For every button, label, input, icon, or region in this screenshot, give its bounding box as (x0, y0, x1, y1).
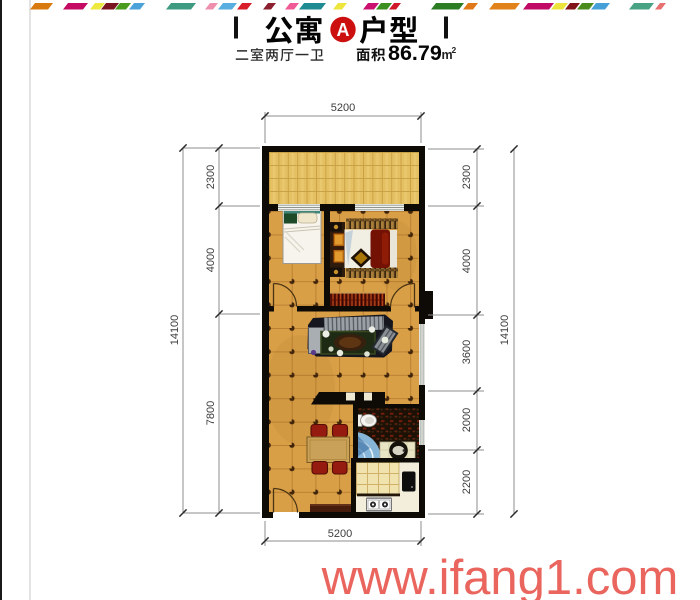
svg-text:2200: 2200 (461, 470, 473, 494)
svg-text:14100: 14100 (169, 315, 181, 346)
svg-text:14100: 14100 (499, 315, 511, 346)
svg-text:5200: 5200 (328, 528, 352, 540)
svg-text:www.ifang1.com: www.ifang1.com (321, 551, 679, 600)
svg-text:86.79: 86.79 (388, 41, 442, 65)
svg-text:3600: 3600 (461, 340, 473, 364)
svg-text:2300: 2300 (205, 165, 217, 189)
svg-text:4000: 4000 (461, 249, 473, 273)
svg-text:5200: 5200 (331, 102, 355, 114)
svg-text:2300: 2300 (461, 165, 473, 189)
svg-text:2000: 2000 (461, 408, 473, 432)
svg-text:A: A (337, 20, 350, 40)
svg-text:2: 2 (452, 45, 457, 55)
svg-text:4000: 4000 (205, 248, 217, 272)
svg-text:7800: 7800 (205, 401, 217, 425)
